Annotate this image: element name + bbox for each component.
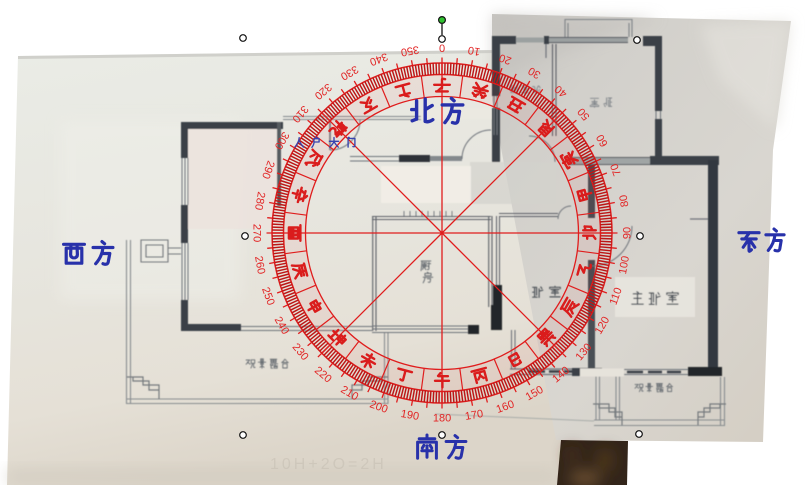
- svg-text:350: 350: [400, 43, 420, 58]
- svg-text:180: 180: [433, 412, 451, 424]
- svg-text:10H+2O=2H: 10H+2O=2H: [270, 456, 387, 473]
- svg-text:90: 90: [621, 227, 633, 239]
- svg-text:270: 270: [251, 224, 263, 242]
- svg-text:0: 0: [439, 42, 445, 54]
- svg-text:10: 10: [467, 44, 481, 58]
- svg-text:80: 80: [618, 194, 632, 208]
